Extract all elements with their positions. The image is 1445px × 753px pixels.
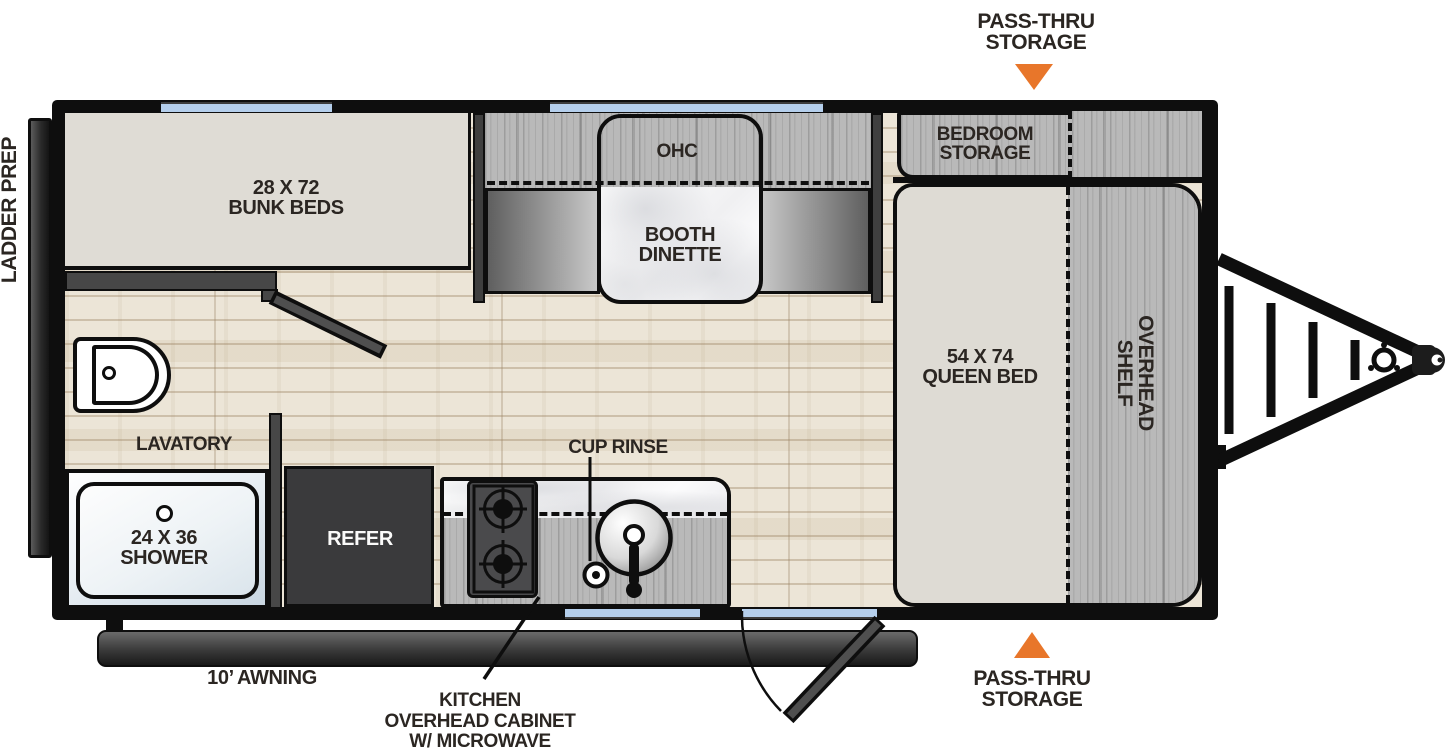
frame-stub xyxy=(1214,445,1226,469)
bathroom-partition-wall xyxy=(65,271,277,291)
floorplan-canvas: PASS-THRU STORAGE LADDER PREP 28 X 72 BU… xyxy=(0,0,1445,753)
lavatory-label: LAVATORY xyxy=(114,435,254,454)
window-top-left xyxy=(161,102,332,112)
pass-thru-storage-bottom-label: PASS-THRU STORAGE xyxy=(942,668,1122,710)
cup-rinse-label: CUP RINSE xyxy=(548,438,688,457)
dinette-bench-left xyxy=(485,188,600,294)
booth-dinette-label: BOOTH DINETTE xyxy=(600,226,760,265)
bed-shelf-dashed-line xyxy=(1066,187,1070,603)
dinette-bench-right xyxy=(757,188,871,294)
dinette-left-wall xyxy=(473,113,485,303)
shower-refer-wall xyxy=(269,413,282,609)
awning-label: 10’ AWNING xyxy=(182,668,342,688)
pass-thru-top-arrow-icon xyxy=(1015,64,1053,90)
toilet-flush-button xyxy=(102,366,116,380)
ladder-prep-bar xyxy=(28,118,52,558)
ladder-prep-label: LADDER PREP xyxy=(0,130,21,290)
refer-label: REFER xyxy=(290,529,430,549)
shower-label: 24 X 36 SHOWER xyxy=(94,529,234,568)
entry-door-window xyxy=(742,609,877,619)
kitchen-cabinet-label: KITCHEN OVERHEAD CABINET W/ MICROWAVE xyxy=(370,691,590,753)
shower-drain xyxy=(156,505,173,522)
window-bottom-kitchen xyxy=(565,609,700,619)
overhead-shelf-label: OVERHEAD SHELF xyxy=(1110,313,1156,433)
awning-bar xyxy=(97,630,918,667)
queen-bed-label: 54 X 74 QUEEN BED xyxy=(880,348,1080,387)
window-top-center xyxy=(550,102,823,112)
hitch-assembly xyxy=(1219,259,1445,461)
ohc-dashed-line xyxy=(487,181,869,185)
bedroom-storage-right-panel xyxy=(1068,111,1202,179)
bedroom-storage-label: BEDROOM STORAGE xyxy=(895,126,1075,163)
cooktop xyxy=(467,480,538,598)
bunk-beds-label: 28 X 72 BUNK BEDS xyxy=(166,179,406,218)
bathroom-door-hinge xyxy=(261,289,278,302)
pass-thru-storage-top-label: PASS-THRU STORAGE xyxy=(946,11,1126,53)
dinette-right-wall xyxy=(871,113,883,303)
ohc-label: OHC xyxy=(627,142,727,161)
pass-thru-bottom-arrow-icon xyxy=(1014,632,1050,658)
coupler xyxy=(1412,345,1445,375)
tongue-jack xyxy=(1368,342,1400,371)
